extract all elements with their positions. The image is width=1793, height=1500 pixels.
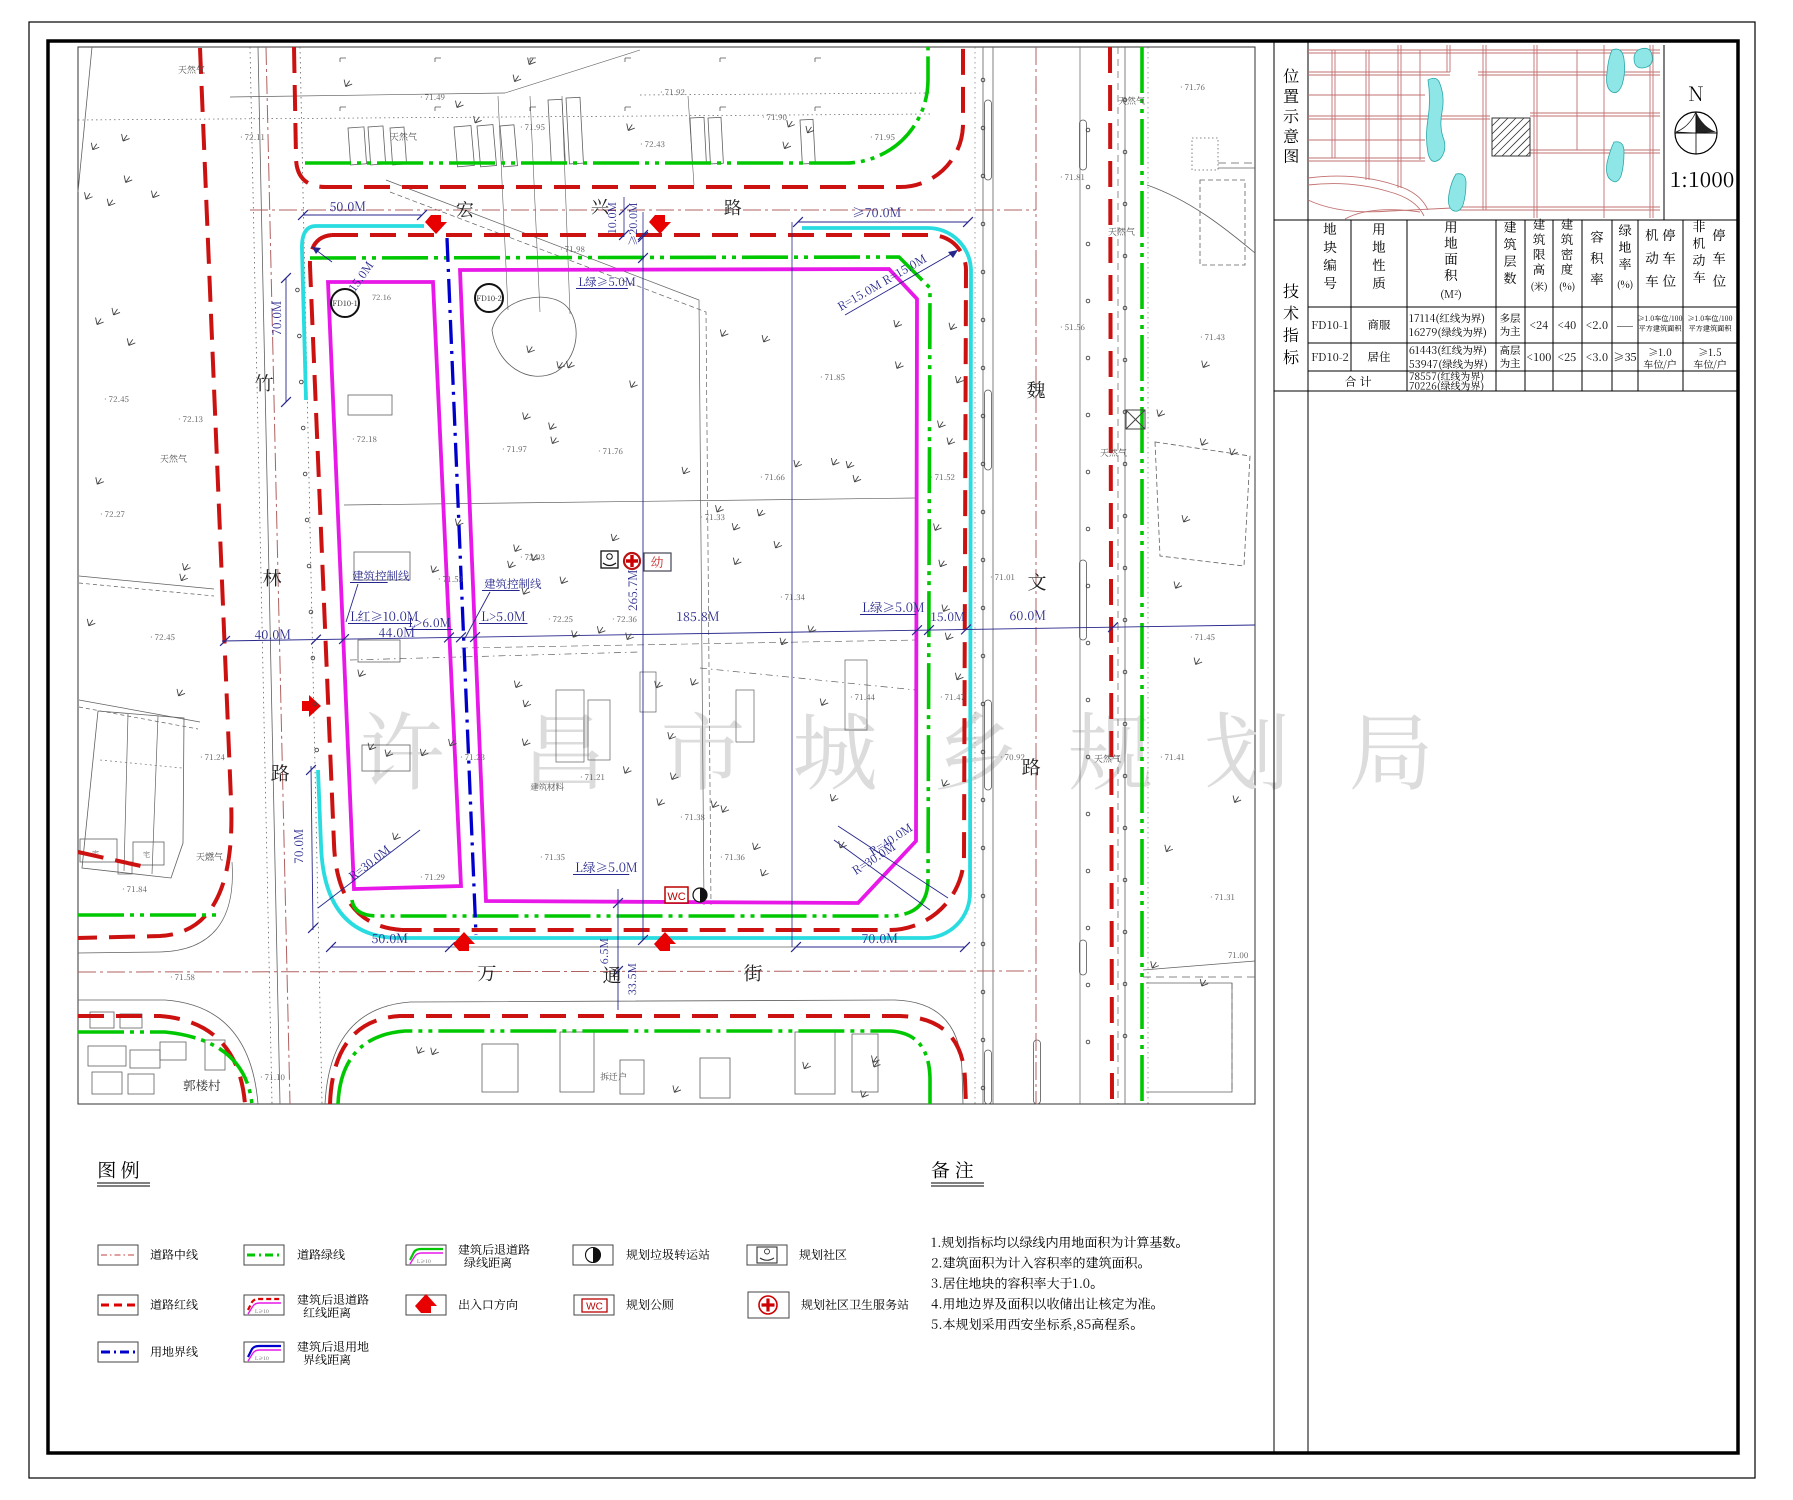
svg-text:车: 车 — [1662, 247, 1676, 267]
svg-text:· 72.18: · 72.18 — [352, 434, 377, 445]
svg-text:城: 城 — [792, 686, 877, 808]
svg-text:L绿≥5.0M: L绿≥5.0M — [862, 598, 925, 616]
svg-text:≥70.0M: ≥70.0M — [852, 203, 901, 221]
svg-text:· 71.95: · 71.95 — [870, 132, 895, 143]
svg-text:· 71.38: · 71.38 — [680, 812, 705, 823]
svg-text:号: 号 — [1323, 272, 1337, 292]
svg-text:天然气: 天然气 — [1108, 225, 1135, 238]
svg-text:≥35: ≥35 — [1613, 349, 1636, 365]
svg-text:道路中线: 道路中线 — [150, 1246, 198, 1263]
svg-text:图 例: 图 例 — [97, 1156, 140, 1183]
svg-text:L≥10: L≥10 — [254, 1355, 269, 1362]
svg-text:L≥10: L≥10 — [416, 1258, 431, 1265]
svg-text:· 72.45: · 72.45 — [150, 632, 175, 643]
svg-text:红线距离: 红线距离 — [303, 1304, 351, 1321]
svg-text:万: 万 — [477, 959, 496, 986]
svg-text:· 72.11: · 72.11 — [240, 132, 265, 143]
svg-text:2.建筑面积为计入容积率的建筑面积。: 2.建筑面积为计入容积率的建筑面积。 — [931, 1253, 1151, 1272]
svg-text:规划公厕: 规划公厕 — [626, 1296, 674, 1313]
svg-text:天然气: 天然气 — [1094, 752, 1121, 765]
svg-text:· 72.43: · 72.43 — [640, 139, 665, 150]
svg-text:郭楼村: 郭楼村 — [183, 1076, 221, 1094]
svg-text:70.0M: 70.0M — [290, 828, 307, 864]
svg-text:71.00: 71.00 — [1228, 950, 1249, 961]
svg-text:· 71.10: · 71.10 — [260, 1072, 285, 1083]
svg-text:· 71.01: · 71.01 — [990, 572, 1015, 583]
svg-text:· 71.76: · 71.76 — [598, 446, 623, 457]
svg-text:高: 高 — [1533, 260, 1546, 278]
svg-text:70.0M: 70.0M — [268, 300, 285, 336]
svg-text:40.0M: 40.0M — [255, 625, 292, 643]
svg-text:林: 林 — [262, 564, 281, 591]
svg-text:合 计: 合 计 — [1344, 373, 1371, 390]
svg-text:72.16: 72.16 — [372, 292, 391, 303]
svg-text:地: 地 — [1372, 236, 1386, 256]
svg-text:· 71.52: · 71.52 — [930, 472, 955, 483]
svg-text:5.本规划采用西安坐标系,85高程系。: 5.本规划采用西安坐标系,85高程系。 — [931, 1314, 1143, 1333]
svg-text:· 71.53: · 71.53 — [438, 574, 463, 585]
svg-text:编: 编 — [1323, 254, 1337, 274]
svg-text:动: 动 — [1645, 247, 1659, 267]
svg-text:· 71.49: · 71.49 — [420, 92, 445, 103]
svg-text:N: N — [1688, 78, 1704, 107]
svg-text:天然气: 天然气 — [178, 63, 205, 76]
svg-text:车位/户: 车位/户 — [1693, 356, 1727, 371]
svg-text:为主: 为主 — [1500, 356, 1522, 371]
svg-text:16279(绿线为界): 16279(绿线为界) — [1409, 325, 1487, 340]
svg-text:为主: 为主 — [1500, 324, 1522, 339]
svg-text:· 72.36: · 72.36 — [612, 614, 637, 625]
svg-text:FD10-2: FD10-2 — [476, 293, 502, 304]
svg-text:70226(绿线为界): 70226(绿线为界) — [1409, 378, 1484, 393]
svg-text:70.0M: 70.0M — [862, 929, 899, 947]
svg-text:· 71.23: · 71.23 — [460, 752, 485, 763]
svg-text:<2.0: <2.0 — [1586, 317, 1608, 333]
svg-text:<3.0: <3.0 — [1586, 349, 1608, 365]
svg-text:质: 质 — [1372, 272, 1386, 292]
svg-text:44.0M: 44.0M — [379, 623, 416, 641]
svg-text:· 71.24: · 71.24 — [200, 752, 225, 763]
svg-text:· 71.34: · 71.34 — [780, 592, 805, 603]
svg-text:· 71.85: · 71.85 — [820, 372, 845, 383]
svg-text:<100: <100 — [1527, 349, 1552, 365]
svg-text:4.用地边界及面积以收储出让核定为准。: 4.用地边界及面积以收储出让核定为准。 — [931, 1294, 1163, 1313]
svg-text:· 70.92: · 70.92 — [1000, 752, 1025, 763]
svg-text:——: —— — [1617, 317, 1634, 332]
svg-text:规划垃圾转运站: 规划垃圾转运站 — [626, 1246, 710, 1263]
svg-text:FD10-2: FD10-2 — [1311, 349, 1348, 365]
svg-text:<24: <24 — [1530, 317, 1548, 333]
svg-text:· 71.33: · 71.33 — [700, 512, 725, 523]
svg-text:· 72.03: · 72.03 — [520, 552, 545, 563]
svg-text:1:1000: 1:1000 — [1670, 164, 1735, 194]
svg-text:图: 图 — [1283, 144, 1299, 167]
svg-text:· 71.95: · 71.95 — [520, 122, 545, 133]
svg-text:标: 标 — [1283, 345, 1299, 368]
svg-text:积: 积 — [1590, 247, 1604, 267]
svg-text:街: 街 — [743, 959, 762, 986]
svg-text:15.0M: 15.0M — [930, 608, 966, 625]
svg-text:建筑材料: 建筑材料 — [530, 781, 565, 793]
svg-text:数: 数 — [1503, 268, 1516, 287]
svg-text:车: 车 — [1645, 270, 1659, 290]
svg-text:· 71.31: · 71.31 — [1210, 892, 1235, 903]
svg-text:50.0M: 50.0M — [330, 197, 367, 215]
svg-text:· 71.90: · 71.90 — [762, 112, 787, 123]
svg-text:车位/户: 车位/户 — [1643, 356, 1677, 371]
svg-text:车: 车 — [1712, 247, 1726, 267]
svg-text:天然气: 天然气 — [160, 452, 187, 465]
svg-text:· 71.41: · 71.41 — [1160, 752, 1185, 763]
svg-text:位: 位 — [1712, 270, 1726, 290]
svg-text:L≥10: L≥10 — [254, 1308, 269, 1315]
svg-text:· 71.98: · 71.98 — [560, 244, 585, 255]
svg-text:265.7M: 265.7M — [624, 569, 641, 611]
svg-text:· 72.13: · 72.13 — [178, 414, 203, 425]
svg-text:L绿≥5.0M: L绿≥5.0M — [578, 274, 637, 290]
svg-text:FD10-1: FD10-1 — [332, 298, 358, 309]
svg-text:· 71.97: · 71.97 — [502, 444, 527, 455]
svg-text:魏: 魏 — [1026, 376, 1045, 403]
svg-text:· 72.27: · 72.27 — [100, 509, 125, 520]
svg-text:划: 划 — [1204, 686, 1289, 808]
svg-text:(米): (米) — [1530, 278, 1547, 293]
svg-text:机: 机 — [1645, 224, 1659, 244]
svg-text:宏: 宏 — [456, 196, 474, 222]
svg-text:天然气: 天然气 — [1100, 446, 1127, 459]
svg-text:停: 停 — [1712, 224, 1726, 244]
svg-text:≥20.0M: ≥20.0M — [625, 201, 641, 246]
svg-text:3.居住地块的容积率大于1.0。: 3.居住地块的容积率大于1.0。 — [931, 1273, 1103, 1292]
svg-text:· 71.47: · 71.47 — [940, 692, 965, 703]
svg-text:宅: 宅 — [143, 850, 150, 860]
svg-text:WC: WC — [667, 891, 685, 903]
svg-text:平方建筑面积: 平方建筑面积 — [1688, 324, 1732, 334]
svg-text:· 71.36: · 71.36 — [720, 852, 745, 863]
svg-text:· 51.56: · 51.56 — [1060, 322, 1085, 333]
svg-text:≥1.0车位/100: ≥1.0车位/100 — [1637, 314, 1682, 324]
svg-text:· 72.45: · 72.45 — [104, 394, 129, 405]
svg-text:33.5M: 33.5M — [624, 961, 640, 995]
svg-text:(%): (%) — [1617, 276, 1634, 291]
svg-text:术: 术 — [1283, 301, 1299, 324]
svg-text:61443(红线为界): 61443(红线为界) — [1409, 343, 1487, 358]
svg-text:块: 块 — [1323, 236, 1337, 256]
svg-text:· 71.76: · 71.76 — [1180, 82, 1205, 93]
svg-text:通: 通 — [602, 961, 621, 988]
svg-text:出入口方向: 出入口方向 — [458, 1296, 518, 1313]
svg-text:1.规划指标均以绿线内用地面积为计算基数。: 1.规划指标均以绿线内用地面积为计算基数。 — [931, 1232, 1188, 1251]
svg-text:· 71.45: · 71.45 — [1190, 632, 1215, 643]
svg-text:建筑控制线: 建筑控制线 — [352, 568, 410, 584]
svg-text:· 71.81: · 71.81 — [1060, 172, 1085, 183]
svg-text:平方建筑面积: 平方建筑面积 — [1638, 324, 1682, 334]
svg-text:居住: 居住 — [1368, 349, 1391, 365]
svg-text:车: 车 — [1692, 267, 1705, 286]
svg-text:路: 路 — [724, 194, 742, 220]
svg-text:· 71.66: · 71.66 — [760, 472, 785, 483]
svg-text:· 71.58: · 71.58 — [170, 972, 195, 983]
svg-text:· 71.44: · 71.44 — [850, 692, 875, 703]
svg-text:率: 率 — [1590, 268, 1604, 288]
svg-text:(%): (%) — [1559, 278, 1576, 293]
svg-text:率: 率 — [1618, 254, 1631, 273]
svg-text:FD10-1: FD10-1 — [1311, 317, 1348, 333]
svg-text:停: 停 — [1662, 224, 1676, 244]
svg-text:规划社区: 规划社区 — [799, 1246, 847, 1263]
svg-text:局: 局 — [1348, 686, 1433, 808]
svg-text:WC: WC — [586, 1302, 603, 1313]
svg-text:规划社区卫生服务站: 规划社区卫生服务站 — [801, 1296, 909, 1313]
svg-text:≥1.0车位/100: ≥1.0车位/100 — [1687, 314, 1732, 324]
svg-text:道路绿线: 道路绿线 — [297, 1246, 345, 1263]
svg-text:地: 地 — [1323, 218, 1337, 238]
svg-text:位: 位 — [1662, 270, 1676, 290]
svg-text:· 72.25: · 72.25 — [548, 614, 573, 625]
svg-text:指: 指 — [1283, 323, 1299, 346]
svg-text:绿线距离: 绿线距离 — [464, 1254, 512, 1271]
svg-text:度: 度 — [1561, 260, 1574, 278]
svg-text:积: 积 — [1444, 264, 1458, 284]
svg-text:商服: 商服 — [1368, 317, 1391, 333]
svg-text:建筑控制线: 建筑控制线 — [484, 576, 542, 592]
svg-text:· 71.35: · 71.35 — [540, 852, 565, 863]
svg-text:· 71.21: · 71.21 — [580, 772, 605, 783]
svg-text:用地界线: 用地界线 — [150, 1343, 198, 1360]
svg-text:<40: <40 — [1558, 317, 1576, 333]
svg-text:L绿≥5.0M: L绿≥5.0M — [575, 858, 638, 876]
svg-text:容: 容 — [1590, 226, 1604, 246]
svg-text:备 注: 备 注 — [931, 1156, 974, 1183]
svg-text:道路红线: 道路红线 — [150, 1296, 198, 1313]
svg-text:· 71.84: · 71.84 — [122, 884, 147, 895]
svg-text:天然气: 天然气 — [1118, 94, 1145, 107]
svg-text:L>5.0M: L>5.0M — [481, 607, 526, 625]
svg-text:17114(红线为界): 17114(红线为界) — [1409, 311, 1485, 326]
svg-text:竹: 竹 — [254, 369, 273, 396]
svg-text:· 71.92: · 71.92 — [660, 87, 685, 98]
svg-text:185.8M: 185.8M — [676, 607, 720, 625]
svg-text:· 71.29: · 71.29 — [420, 872, 445, 883]
svg-text:路: 路 — [270, 759, 289, 786]
svg-text:界线距离: 界线距离 — [303, 1351, 351, 1368]
svg-text:(M2): (M2) — [1440, 287, 1462, 302]
svg-text:60.0M: 60.0M — [1010, 606, 1047, 624]
svg-text:性: 性 — [1372, 254, 1386, 274]
svg-text:用: 用 — [1372, 218, 1386, 238]
svg-text:天燃气: 天燃气 — [196, 850, 223, 863]
svg-text:50.0M: 50.0M — [372, 929, 409, 947]
svg-text:<25: <25 — [1558, 349, 1576, 365]
svg-text:乡: 乡 — [933, 686, 1018, 808]
svg-text:兴: 兴 — [591, 193, 609, 219]
svg-text:许: 许 — [359, 686, 444, 808]
svg-text:技: 技 — [1283, 279, 1299, 302]
svg-text:文: 文 — [1027, 568, 1046, 595]
svg-text:天然气: 天然气 — [390, 130, 417, 143]
svg-text:· 71.43: · 71.43 — [1200, 332, 1225, 343]
svg-text:拆迁户: 拆迁户 — [600, 1070, 627, 1083]
svg-text:幼: 幼 — [650, 552, 663, 571]
